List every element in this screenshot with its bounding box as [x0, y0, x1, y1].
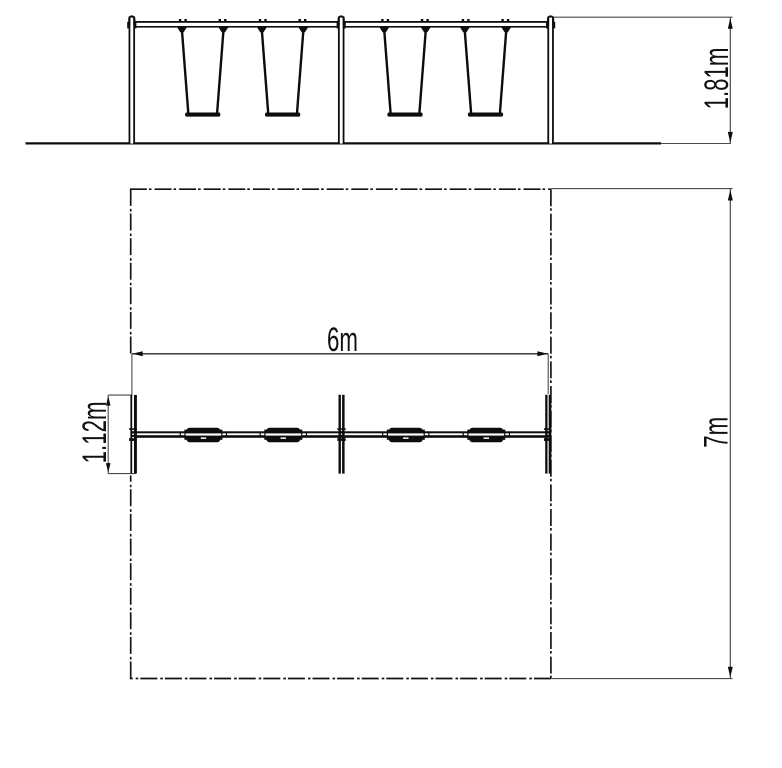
- svg-text:1.81m: 1.81m: [698, 48, 736, 110]
- svg-text:1.12m: 1.12m: [76, 401, 114, 463]
- svg-text:7m: 7m: [698, 417, 736, 448]
- svg-text:6m: 6m: [327, 321, 358, 359]
